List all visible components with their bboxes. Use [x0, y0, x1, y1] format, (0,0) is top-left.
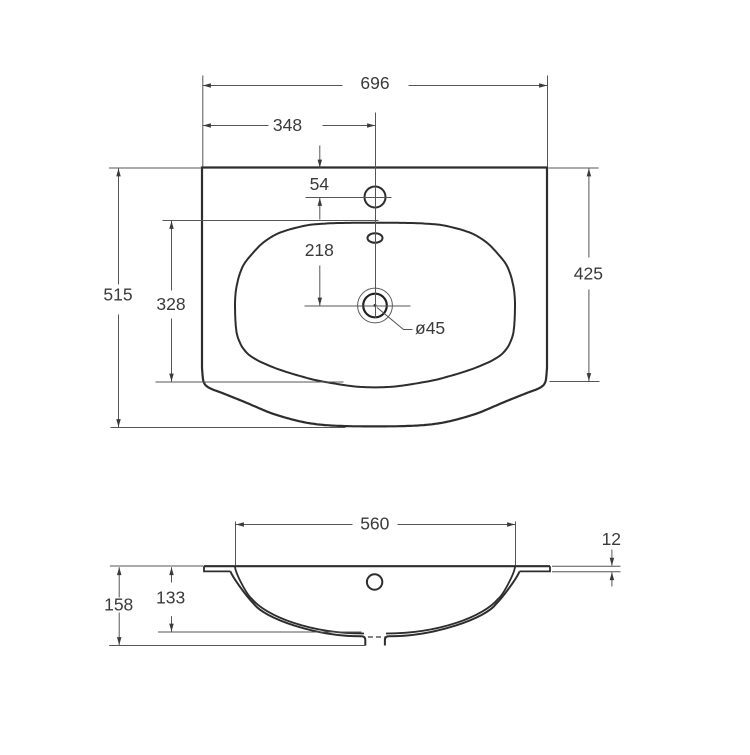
- svg-text:560: 560: [360, 514, 389, 534]
- svg-text:348: 348: [273, 115, 302, 135]
- svg-text:54: 54: [310, 174, 330, 194]
- svg-text:696: 696: [360, 73, 389, 93]
- svg-text:515: 515: [103, 285, 132, 305]
- svg-text:218: 218: [305, 240, 334, 260]
- svg-text:ø45: ø45: [415, 318, 445, 338]
- svg-text:158: 158: [104, 595, 133, 615]
- svg-text:12: 12: [602, 529, 621, 549]
- svg-text:425: 425: [574, 264, 603, 284]
- svg-text:133: 133: [156, 588, 185, 608]
- svg-text:328: 328: [156, 294, 185, 314]
